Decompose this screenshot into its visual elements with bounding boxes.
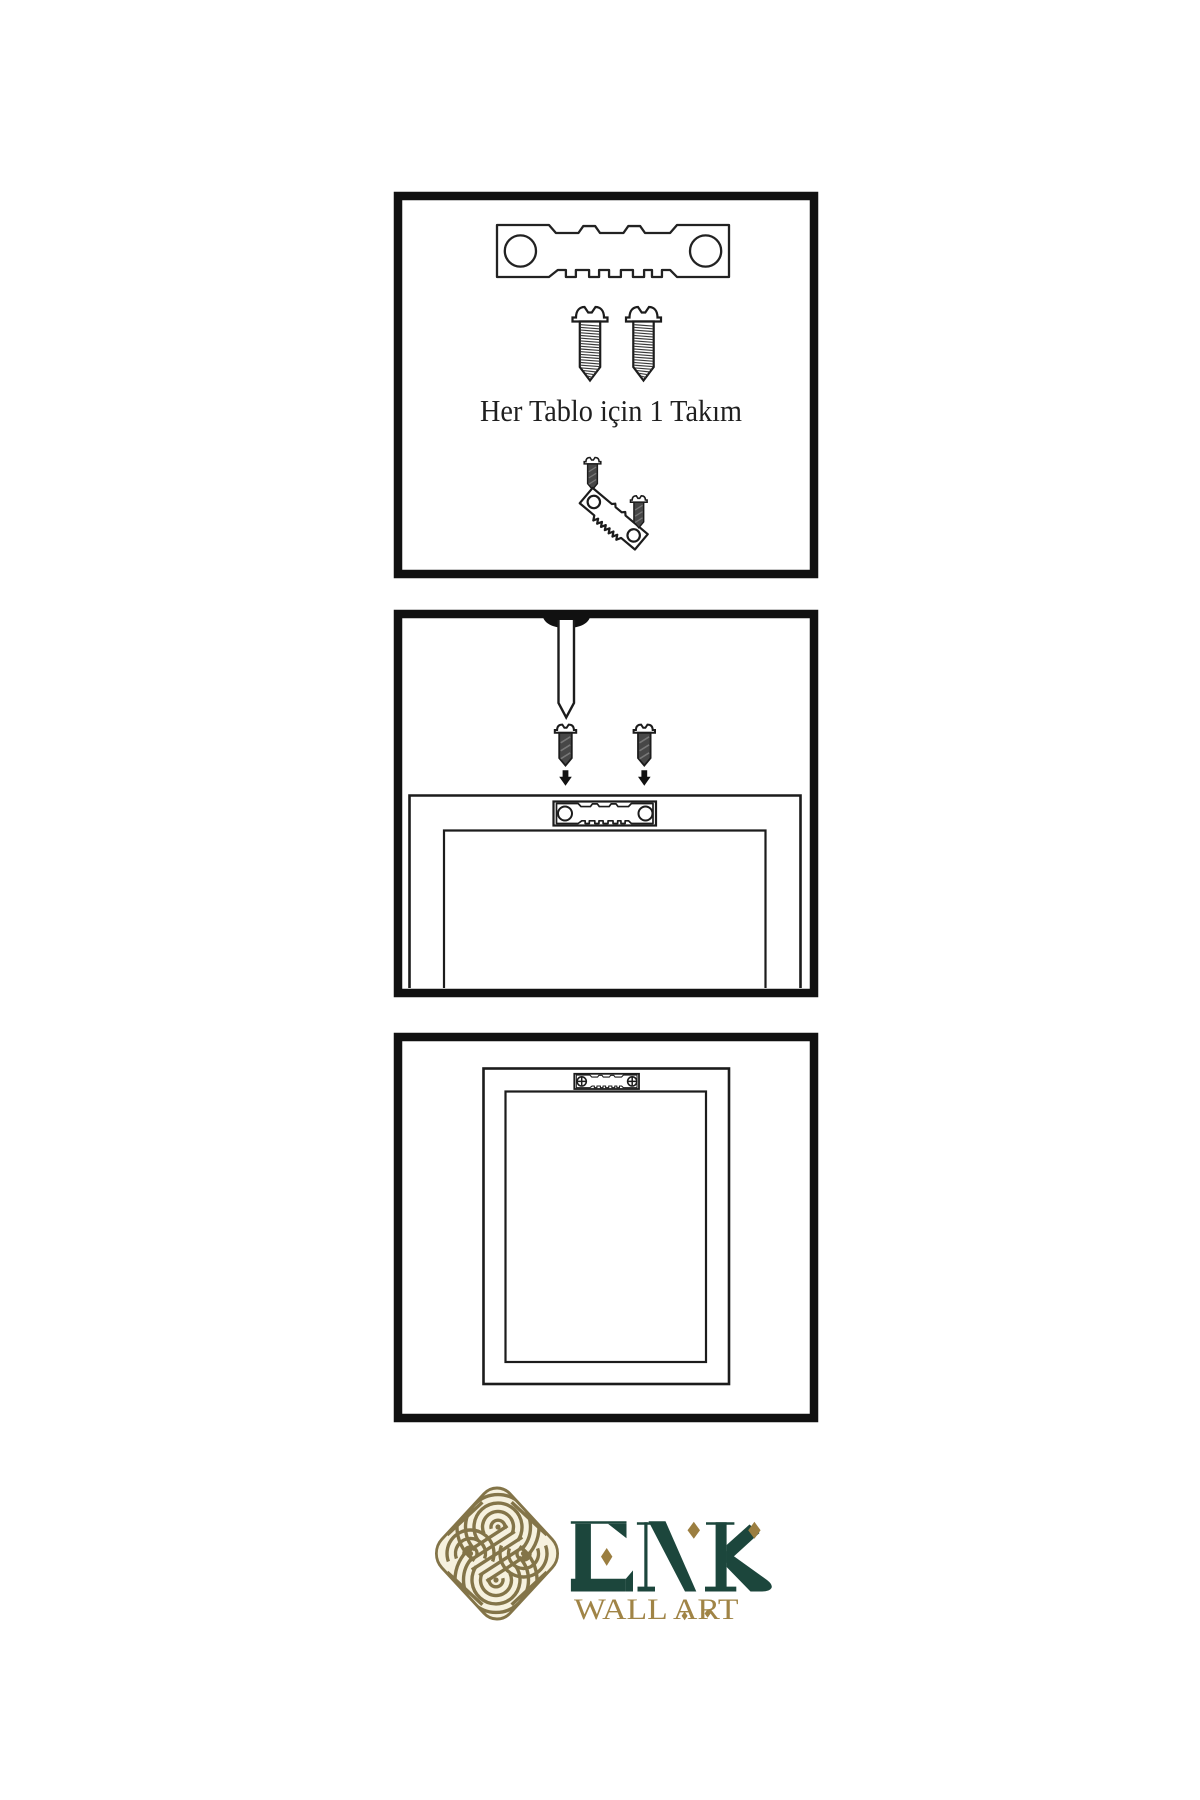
svg-text:Her Tablo için 1 Takım: Her Tablo için 1 Takım bbox=[480, 393, 742, 428]
svg-text:WALL ART: WALL ART bbox=[574, 1593, 739, 1626]
